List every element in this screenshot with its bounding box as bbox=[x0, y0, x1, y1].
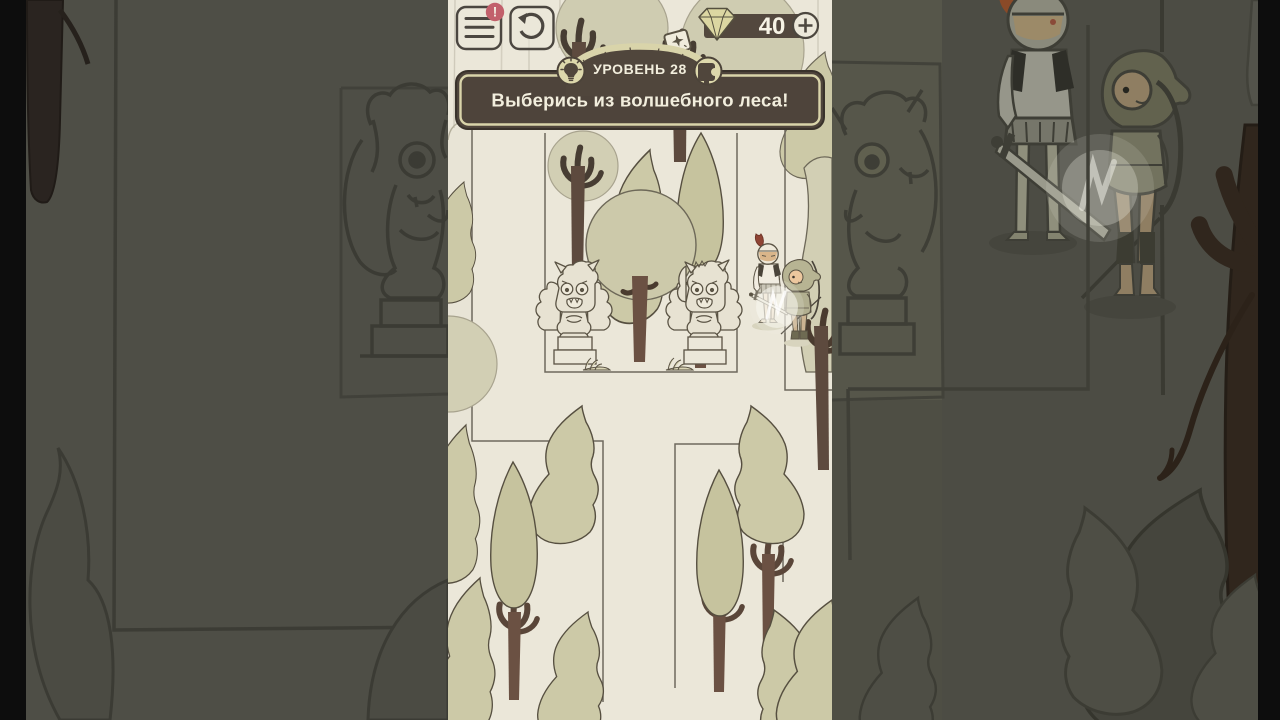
svg-text:40: 40 bbox=[759, 13, 786, 40]
svg-text:!: ! bbox=[493, 5, 498, 20]
svg-text:УРОВЕНЬ 28: УРОВЕНЬ 28 bbox=[593, 61, 687, 77]
svg-text:Выберись из волшебного леса!: Выберись из волшебного леса! bbox=[491, 90, 788, 111]
